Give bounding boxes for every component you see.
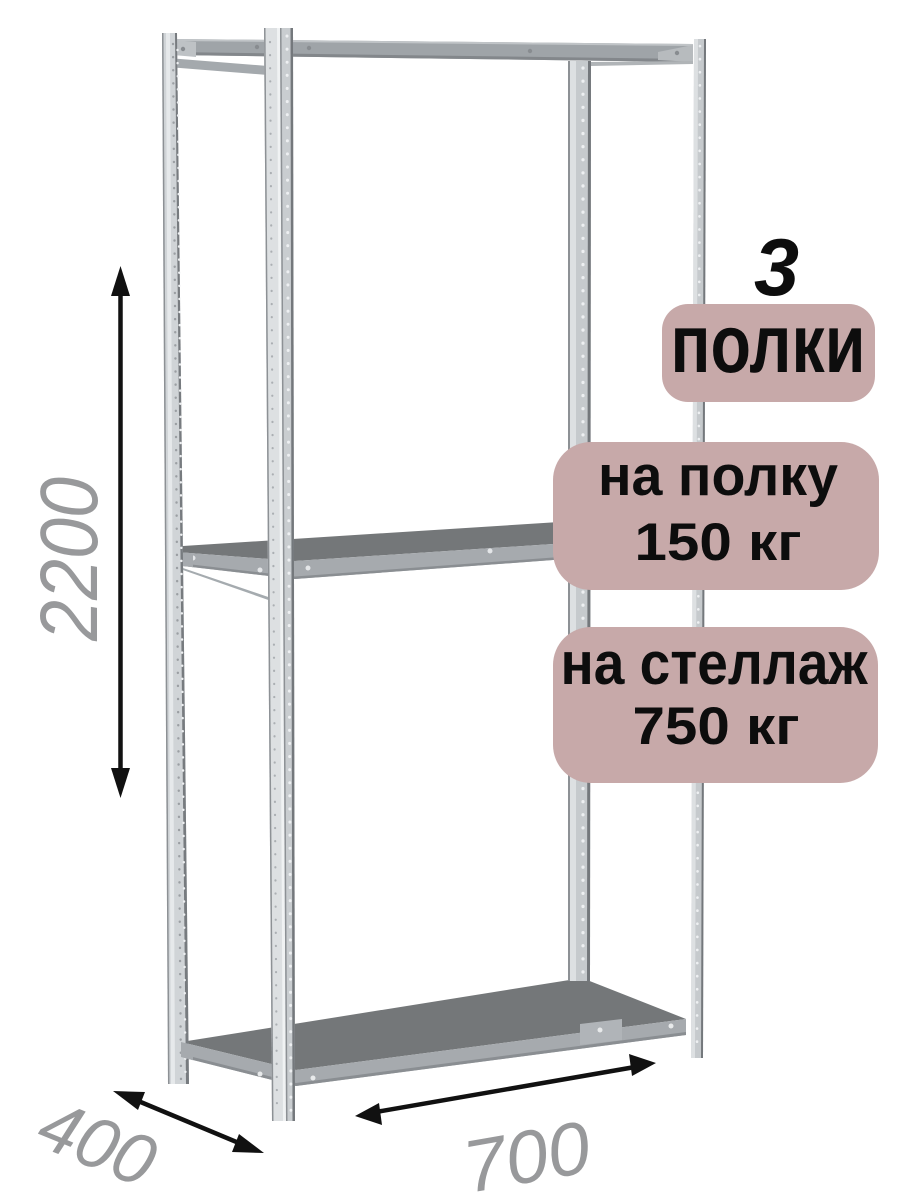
svg-text:на стеллаж: на стеллаж <box>561 630 869 697</box>
svg-text:150 кг: 150 кг <box>635 513 802 572</box>
svg-text:полки: полки <box>671 297 866 390</box>
svg-text:750 кг: 750 кг <box>633 697 800 756</box>
svg-text:на полку: на полку <box>598 444 838 508</box>
svg-text:2200: 2200 <box>24 477 115 642</box>
